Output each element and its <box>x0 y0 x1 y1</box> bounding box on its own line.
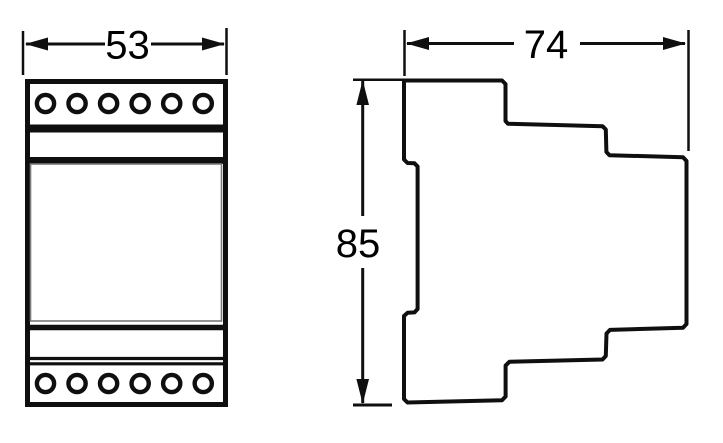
width-dimension-label: 53 <box>105 24 150 68</box>
arrowhead-left-icon <box>25 38 48 51</box>
arrowhead-right-icon <box>202 38 225 51</box>
terminal-circle <box>100 95 117 112</box>
width-dimension: 53 <box>23 24 227 76</box>
terminal-circle <box>68 95 85 112</box>
height-dimension: 85 <box>336 80 403 405</box>
technical-dimension-drawing: 53 74 85 <box>0 0 723 443</box>
arrowhead-up-icon <box>356 80 369 105</box>
arrowhead-down-icon <box>356 379 369 404</box>
depth-dimension-label: 74 <box>524 23 569 67</box>
terminal-circle <box>163 375 180 392</box>
arrowhead-right-icon <box>663 37 686 50</box>
terminal-circle <box>195 375 212 392</box>
terminal-circle <box>132 95 149 112</box>
terminal-circle <box>132 375 149 392</box>
terminal-circle <box>37 375 54 392</box>
terminal-circle <box>195 95 212 112</box>
terminal-circle <box>100 375 117 392</box>
side-profile <box>404 81 687 403</box>
terminal-circle <box>37 95 54 112</box>
arrowhead-left-icon <box>406 37 429 50</box>
height-dimension-label: 85 <box>336 222 381 266</box>
side-view <box>404 81 687 403</box>
terminal-circle <box>163 95 180 112</box>
drawing-canvas: 53 74 85 <box>0 0 723 443</box>
front-view <box>26 82 228 405</box>
terminal-circle <box>68 375 85 392</box>
